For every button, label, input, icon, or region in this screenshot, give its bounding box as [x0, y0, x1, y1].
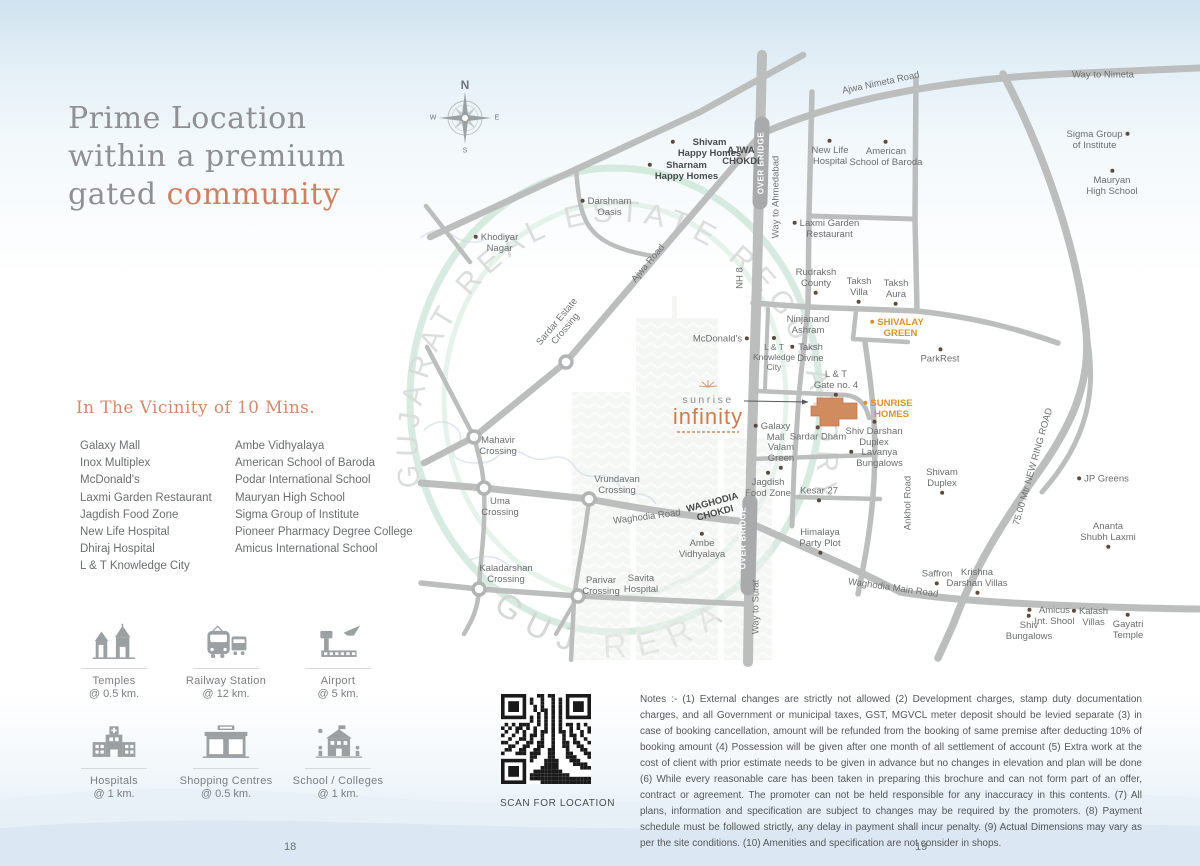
compass-s-label: S [463, 148, 468, 155]
poi-dot-icon [817, 499, 821, 503]
vicinity-column-2: Ambe VidhyalayaAmerican School of Baroda… [235, 438, 425, 558]
hospital-icon [88, 722, 140, 764]
poi-dot-icon [671, 140, 675, 144]
divider [193, 768, 259, 769]
poi-dot-icon [940, 491, 944, 495]
airport-icon [312, 622, 364, 664]
poi-dot-icon [834, 393, 838, 397]
map-poi: Savita Hospital [624, 573, 658, 595]
map-poi: L & T Gate no. 4 [814, 369, 858, 397]
poi-dot-icon [581, 199, 585, 203]
poi-dot-icon [872, 420, 876, 424]
logo-brand: infinity [667, 406, 749, 428]
map-poi: Laxmi Garden Restaurant [793, 218, 860, 240]
poi-dot-icon [1110, 169, 1114, 173]
compass-w-label: W [430, 115, 437, 122]
sunrise-infinity-logo: sunrise infinity [667, 375, 749, 433]
poi-dot-icon [766, 471, 770, 475]
map-road-label: OVER BRIDGE [738, 507, 747, 570]
qr-block: SCAN FOR LOCATION [500, 694, 592, 809]
vicinity-item: McDonald's [80, 472, 230, 489]
map-poi: SUNRISE HOMES [863, 398, 912, 420]
compass-n-label: N [461, 78, 470, 92]
page-title: Prime Location within a premium gated co… [68, 100, 346, 214]
logo-tagline-decor [677, 431, 739, 433]
vicinity-item: Mauryan High School [235, 490, 425, 507]
amenity-railway: Railway Station @ 12 km. [170, 622, 282, 700]
school-icon [312, 722, 364, 764]
map-poi: Uma Crossing [481, 496, 519, 518]
poi-dot-icon [894, 302, 898, 306]
poi-dot-icon [870, 320, 874, 324]
sun-rays-icon [698, 378, 718, 388]
map-road-label: Sardar Estate Crossing [535, 297, 589, 356]
poi-dot-icon [745, 336, 749, 340]
temple-icon [89, 622, 139, 664]
poi-dot-icon [779, 466, 783, 470]
shopping-centre-icon [200, 722, 252, 764]
poi-dot-icon [828, 139, 832, 143]
poi-dot-icon [1077, 476, 1081, 480]
map-poi: Sharnam Happy Homes [648, 160, 718, 182]
amenity-hospitals: Hospitals @ 1 km. [58, 722, 170, 800]
poi-dot-icon [648, 163, 652, 167]
map-road-label: Way to Nimeta [1072, 71, 1134, 82]
map-poi: Taksh Villa [847, 276, 872, 304]
map-road-label: Way to Surat [752, 580, 763, 635]
poi-dot-icon [818, 551, 822, 555]
map-poi: Galaxy Mall [754, 421, 791, 443]
map-poi: Mauryan High School [1086, 169, 1137, 197]
amenity-airport: Airport @ 5 km. [282, 622, 394, 700]
map-road-label: Waghodia Road [613, 508, 682, 527]
poi-dot-icon [1072, 609, 1076, 613]
vicinity-item: Sigma Group of Institute [235, 507, 425, 524]
poi-dot-icon [938, 347, 942, 351]
poi-dot-icon [474, 235, 478, 239]
vicinity-item: American School of Baroda [235, 455, 425, 472]
map-poi: Lavanya Bungalows [849, 447, 902, 469]
poi-dot-icon [814, 291, 818, 295]
map-poi: SHIVALAY GREEN [870, 317, 923, 339]
map-poi: Ananta Shubh Laxmi [1080, 521, 1135, 549]
divider [305, 768, 371, 769]
qr-caption: SCAN FOR LOCATION [500, 798, 592, 809]
map-poi: AJWA CHOKDI [722, 145, 759, 167]
map-poi: American School of Baroda [850, 140, 923, 168]
vicinity-item: Jagdish Food Zone [80, 507, 230, 524]
divider [193, 668, 259, 669]
vicinity-heading: In The Vicinity of 10 Mins. [76, 398, 315, 418]
vicinity-column-1: Galaxy MallInox MultiplexMcDonald'sLaxmi… [80, 438, 230, 576]
divider [81, 768, 147, 769]
poi-dot-icon [1106, 545, 1110, 549]
map-poi: Kesar 27 [800, 485, 838, 502]
map-poi: Ambe Vidhyalaya [679, 532, 725, 560]
map-poi: Krishna Darshan Villas [946, 567, 1007, 595]
map-poi: McDonald's [693, 333, 749, 344]
site-pointer-arrow [744, 401, 808, 402]
map-road-label: Way to Ahmedabad [772, 156, 783, 239]
vicinity-item: Laxmi Garden Restaurant [80, 490, 230, 507]
poi-dot-icon [863, 401, 867, 405]
vicinity-item: Dhiraj Hospital [80, 541, 230, 558]
poi-dot-icon [1125, 132, 1129, 136]
map-poi: Kalash Villas [1072, 606, 1108, 628]
map-poi: New Life Hospital [812, 139, 849, 167]
map-poi: Gayatri Temple [1113, 613, 1144, 641]
poi-dot-icon [790, 345, 794, 349]
poi-dot-icon [754, 424, 758, 428]
map-poi: Sigma Group of Institute [1067, 129, 1130, 151]
map-road-label: WAGHODIA CHOKDI [685, 492, 742, 527]
map-poi: ParkRest [920, 347, 959, 364]
amenity-schools: School / Colleges @ 1 km. [282, 722, 394, 800]
poi-dot-icon [700, 532, 704, 536]
vicinity-item: Pioneer Pharmacy Degree College [235, 524, 425, 541]
poi-dot-icon [849, 450, 853, 454]
vicinity-item: Ambe Vidhyalaya [235, 438, 425, 455]
map-poi: Mahavir Crossing [479, 435, 517, 457]
map-poi: Taksh Aura [884, 278, 909, 306]
poi-dot-icon [857, 300, 861, 304]
map-poi: Rudraksh County [796, 267, 837, 295]
poi-dot-icon [975, 591, 979, 595]
map-poi: Shivam Duplex [926, 467, 958, 495]
compass-icon [439, 92, 491, 144]
map-poi: Kaladarshan Crossing [479, 563, 532, 585]
map-road-label: NH 8 [736, 267, 747, 289]
vicinity-item: New Life Hospital [80, 524, 230, 541]
map-poi: JP Greens [1077, 473, 1129, 484]
divider [81, 668, 147, 669]
vicinity-item: Podar International School [235, 472, 425, 489]
map-poi: Shiv Darshan Duplex [845, 420, 902, 448]
title-accent: community [167, 177, 341, 212]
map-poi: Himalaya Party Plot [799, 527, 840, 555]
amenity-shopping: Shopping Centres @ 0.5 km. [170, 722, 282, 800]
poi-dot-icon [1126, 613, 1130, 617]
qr-code [501, 694, 591, 784]
map-poi: Valam Green [768, 442, 794, 470]
poi-dot-icon [1027, 608, 1031, 612]
map-road-label: Ajwa Nimeta Road [841, 70, 920, 97]
map-poi: L & T Knowledge City [753, 336, 795, 372]
map-poi: Darshnam Oasis [581, 196, 632, 218]
vicinity-item: Amicus International School [235, 541, 425, 558]
amenities-grid: Temples @ 0.5 km. Railway Station @ 12 k… [58, 622, 394, 800]
page-number-right: 19 [915, 841, 927, 853]
poi-dot-icon [772, 336, 776, 340]
page-number-left: 18 [284, 841, 296, 853]
compass-e-label: E [495, 115, 500, 122]
map-poi: Parivar Crossing [582, 575, 620, 597]
vicinity-item: Inox Multiplex [80, 455, 230, 472]
vicinity-item: L & T Knowledge City [80, 558, 230, 575]
map-road-label: Ankhol Road [904, 476, 915, 530]
railway-station-icon [200, 622, 252, 664]
poi-dot-icon [884, 140, 888, 144]
map-poi: Jagdish Food Zone [745, 471, 791, 499]
map-poi: Khodiyar Nagar [474, 232, 519, 254]
notes-text: Notes :- (1) External changes are strict… [640, 692, 1142, 852]
poi-dot-icon [816, 425, 820, 429]
map-poi: Taksh Divine [790, 342, 823, 364]
map-road-label: 75.00 Mtr NEW RING ROAD [1012, 407, 1056, 527]
poi-dot-icon [793, 221, 797, 225]
poi-dot-icon [935, 582, 939, 586]
vicinity-item: Galaxy Mall [80, 438, 230, 455]
brochure-page: GUJARAT REAL ESTATE REGULATORY AUTHORITY… [0, 0, 1200, 866]
map-poi: Vrundavan Crossing [594, 474, 640, 496]
map-poi: Ninjanand Ashram [787, 314, 830, 336]
map-poi: Sardar Dham [790, 425, 847, 442]
amenity-temples: Temples @ 0.5 km. [58, 622, 170, 700]
map-road-label: Ajwa Road [630, 243, 668, 285]
map-poi: Amicus Int. Shool [1027, 605, 1074, 627]
divider [305, 668, 371, 669]
